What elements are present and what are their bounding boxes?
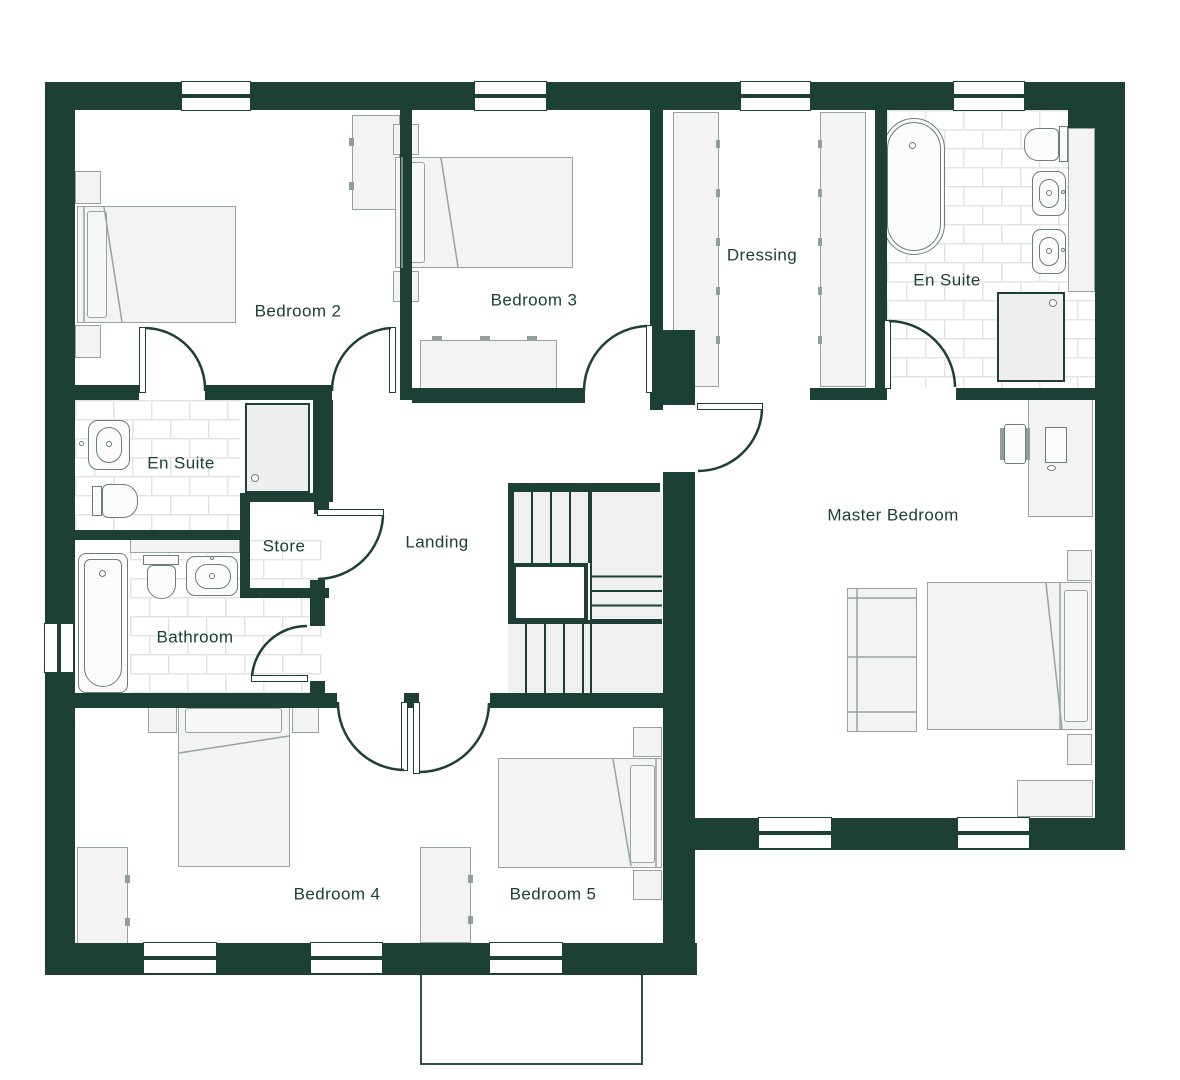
tap [79,441,84,446]
desk-chair [1004,424,1026,464]
wall-landing-master [663,472,695,943]
window [474,81,547,112]
wardrobe [77,847,128,944]
floor-plan: Bedroom 2 Bedroom 3 Dressing En Suite En… [0,0,1180,1080]
mouse [1047,465,1056,471]
toilet-cistern [1059,126,1068,162]
door-leaf [389,327,396,393]
toilet-cistern [143,555,179,565]
room-label-store: Store [263,538,306,555]
door-arc [146,328,205,391]
dresser [420,340,557,390]
door-leaf [317,509,384,516]
bathtub-inner [84,559,122,687]
vanity-counter [1068,128,1095,292]
door-arc [419,703,489,772]
chair-rail [1000,428,1004,460]
window [758,817,832,850]
wall-bed2-bed3 [400,110,412,400]
window [953,81,1025,112]
stairs-winder-treads [590,563,662,620]
wardrobe [820,112,866,387]
window [957,817,1030,850]
wardrobe-handle [125,875,130,883]
wardrobe-handle [349,138,354,146]
monitor [1045,427,1067,463]
wardrobe-handle [468,875,473,883]
nightstand [1067,734,1092,765]
room-label-dressing: Dressing [727,247,797,264]
wall-exterior-right [1095,110,1125,850]
wall-bed3-bottom [412,388,585,403]
door-leaf [413,702,420,774]
wall-ensuite-master-bottom [956,388,1095,400]
toilet-cistern [92,486,102,516]
nightstand [148,705,177,733]
door-leaf [401,702,408,771]
toilet [147,565,176,599]
sink-drain [1046,190,1052,196]
stairs-upper-flight [514,492,590,563]
stairs-border [508,483,660,492]
pillow [185,708,282,733]
sink-drain [209,573,215,579]
door-arc [332,328,391,391]
nightstand [633,870,662,900]
wall-store-left [240,502,250,598]
pillow [630,765,655,863]
window [44,623,75,673]
nightstand [75,325,101,358]
sofa [847,588,917,732]
room-label-landing: Landing [405,534,468,551]
shower-drain [1049,299,1057,307]
wall-shower-right [313,400,333,502]
wardrobe-handle [125,918,130,926]
wardrobe [420,847,471,943]
wardrobe-handle [468,916,473,924]
wall-bathroom-right [310,580,325,626]
nightstand [292,705,319,733]
room-label-bathroom: Bathroom [157,629,234,646]
cabinet [1017,780,1093,817]
door-arc [698,410,762,471]
tap [1061,248,1065,252]
nightstand [1067,550,1092,581]
stairs-lower-flight [508,624,590,693]
chair-rail [1026,428,1030,460]
window [143,942,217,975]
wall-bathroom-bed4 [45,693,337,708]
vanity-counter [130,538,240,553]
pillow [1064,590,1088,722]
room-label-master-bedroom: Master Bedroom [827,507,958,524]
wall-ensuite-master-corner [1068,110,1095,128]
wall-ensuite-bathroom [75,530,240,540]
room-label-ensuite-master: En Suite [913,272,980,289]
room-label-bedroom3: Bedroom 3 [491,292,578,309]
tap [210,556,214,560]
dresser-handle [432,336,442,340]
wardrobe-handles [818,140,822,352]
tap [1061,190,1065,194]
window [181,81,251,112]
room-label-bedroom5: Bedroom 5 [510,886,597,903]
wall-bed2-bottom [75,385,139,400]
sink-drain [106,441,112,447]
roof-outline [420,975,643,1065]
wall-exterior-left [45,110,75,975]
door-arc [338,702,404,770]
toilet [102,484,138,518]
door-leaf [646,325,653,393]
door-arc [318,516,383,579]
door-leaf [251,675,308,682]
wall-bed2-bottom [205,385,332,400]
wardrobe-handles [716,140,720,352]
window [740,81,811,112]
stairs-lower-tread [590,624,662,693]
sink-drain [1046,248,1052,254]
wall-dressing-corner [663,330,695,405]
wardrobe-handle [349,182,354,190]
bathtub-drain [99,570,106,577]
toilet [1024,128,1059,161]
stairs-landing-tread [590,492,662,563]
door-leaf [697,403,763,410]
dresser-handle [527,336,537,340]
pillow [87,211,107,318]
door-leaf [884,320,891,389]
nightstand [633,727,662,757]
stairs-void [512,563,588,622]
dresser-handle [480,336,490,340]
wall-landing-bed5 [490,693,663,708]
window [489,942,563,975]
door-arc [584,326,647,391]
wall-store-top [240,493,329,502]
room-label-bedroom4: Bedroom 4 [294,886,381,903]
nightstand [75,171,101,204]
shower-drain [251,474,259,482]
room-label-bedroom2: Bedroom 2 [255,303,342,320]
door-leaf [139,327,146,393]
bathtub-drain [909,142,916,149]
room-label-ensuite2: En Suite [147,455,214,472]
window [310,942,383,975]
